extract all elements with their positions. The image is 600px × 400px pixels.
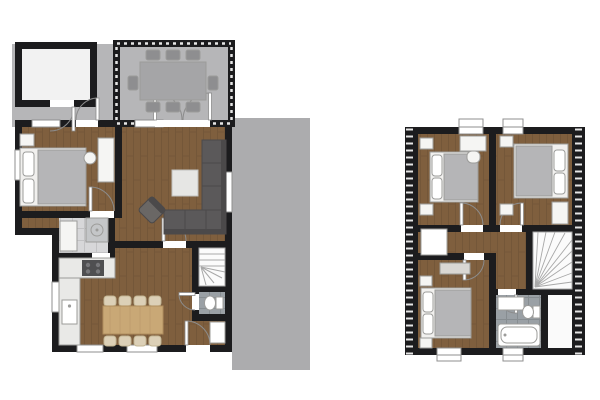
nightstand bbox=[420, 276, 432, 286]
wardrobe bbox=[552, 202, 568, 224]
toilet bbox=[523, 306, 541, 319]
staircase-ground bbox=[199, 248, 225, 286]
bathtub bbox=[498, 324, 540, 346]
garden-table bbox=[140, 62, 206, 100]
landing-closet bbox=[421, 229, 447, 255]
nightstand bbox=[20, 134, 34, 146]
toilet-tank bbox=[216, 297, 223, 309]
nightstand bbox=[420, 204, 433, 215]
nightstand bbox=[500, 204, 513, 215]
wc bbox=[205, 296, 224, 310]
double-bed bbox=[421, 288, 471, 338]
shed bbox=[15, 42, 97, 107]
nightstand bbox=[420, 138, 433, 149]
floor-plan-canvas bbox=[0, 0, 600, 400]
coffee-table bbox=[172, 170, 198, 196]
desk-chair bbox=[467, 151, 480, 163]
double-bed bbox=[20, 148, 86, 206]
dining-table bbox=[103, 306, 163, 334]
shower bbox=[86, 218, 108, 242]
kitchen-sink bbox=[62, 300, 77, 324]
hall-closet bbox=[210, 322, 225, 343]
bathtub bbox=[60, 221, 77, 251]
under-roof-storage bbox=[548, 295, 572, 348]
ground-floor-plan bbox=[12, 40, 310, 370]
stove bbox=[82, 260, 104, 276]
desk-chair bbox=[84, 152, 96, 164]
toilet bbox=[205, 296, 216, 310]
terrace bbox=[232, 118, 310, 370]
vanity-sink bbox=[498, 297, 524, 310]
floor-plan-svg bbox=[0, 0, 600, 400]
nightstand bbox=[420, 338, 432, 348]
dresser bbox=[440, 263, 470, 274]
double-bed bbox=[514, 144, 568, 198]
desk bbox=[98, 138, 114, 182]
upper-floor-plan bbox=[405, 119, 585, 361]
desk bbox=[460, 136, 486, 151]
nightstand bbox=[500, 136, 513, 147]
